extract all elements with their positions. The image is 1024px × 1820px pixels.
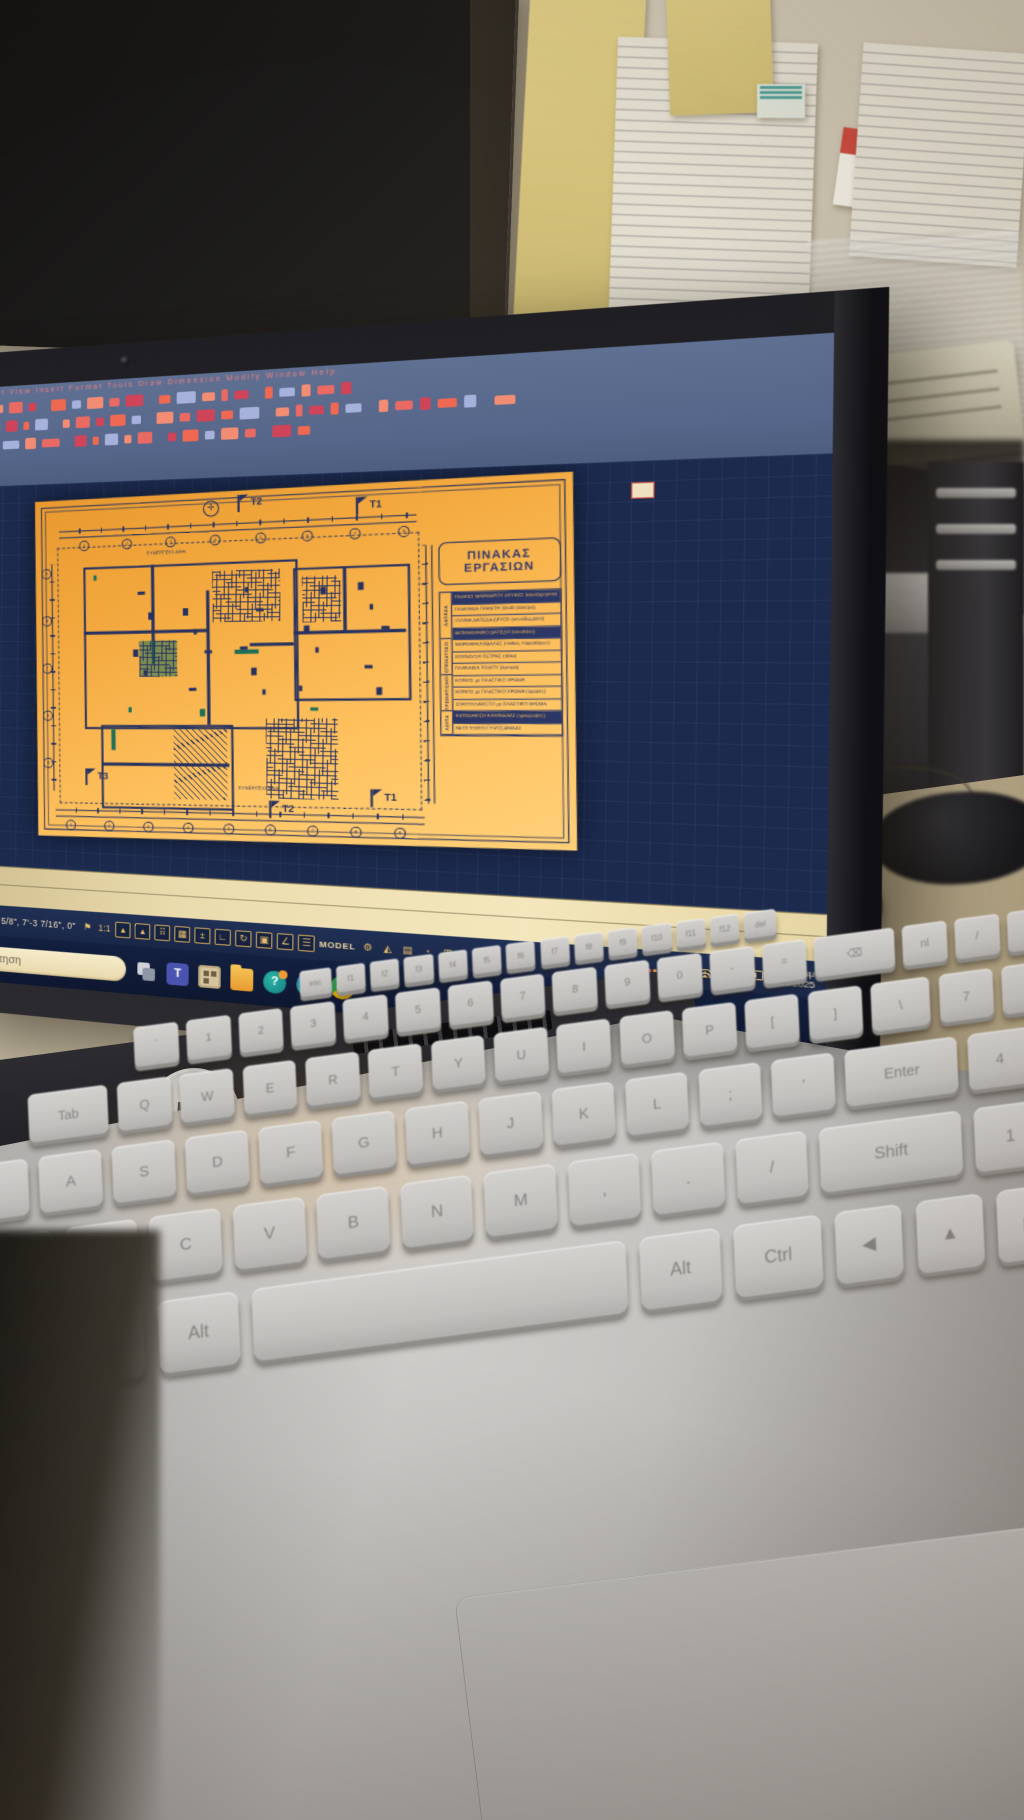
keyboard-key: ▶ — [996, 1182, 1024, 1263]
furniture-symbol — [245, 587, 248, 592]
toolbar-icon[interactable] — [105, 434, 118, 446]
toolbar-icon[interactable] — [110, 414, 125, 426]
keyboard-key: * — [1006, 907, 1024, 953]
keyboard-key: B — [316, 1186, 390, 1260]
furniture-symbol — [381, 626, 389, 630]
keyboard-key: ` — [133, 1022, 179, 1068]
keyboard-key: A — [39, 1149, 104, 1213]
furniture-symbol — [138, 591, 145, 594]
toolbar-icon[interactable] — [28, 403, 36, 412]
status-annotation-visibility[interactable]: ▴ — [115, 921, 131, 938]
furniture-symbol — [358, 582, 364, 590]
toolbar-icon[interactable] — [159, 394, 171, 403]
keyboard-key: 8 — [1001, 960, 1024, 1015]
keyboard-key: G — [332, 1111, 397, 1175]
toolbar-icon[interactable] — [42, 438, 60, 447]
cad-drawing-canvas[interactable]: ΣΥΝΕΡΓΕΙΟ ΑΘΗ ΣΥΝΕΡΓΕΙΟ ΑΘΗ ✛ T2 T1 T3 T… — [0, 453, 833, 914]
toolbar-icon[interactable] — [124, 435, 131, 444]
toolbar-icon[interactable] — [93, 436, 99, 445]
status-annotation-flag[interactable]: ⚑ — [81, 920, 94, 934]
device-tower — [928, 462, 1024, 792]
keyboard-key: nl — [902, 921, 948, 967]
status-model-space[interactable]: MODEL — [319, 937, 355, 954]
toolbar-icon[interactable] — [345, 403, 361, 413]
toolbar-icon[interactable] — [157, 412, 174, 425]
works-panel: ΠΙΝΑΚΑΣ ΕΡΓΑΣΙΩΝ ΔΑΠΕΔΑΕΠΕΝΔΥΣΕΙΣΧΡΩΜΑΤΙ… — [438, 537, 564, 834]
works-table-row: ΚΑΤΕΔΑΦΙΣΗ ΚΑΜΙΝΑΔΑΣ (ημιώροφος) — [453, 711, 562, 723]
keyboard-key: / — [954, 914, 1000, 960]
keyboard-key: , — [568, 1153, 642, 1227]
status-ortho-mode[interactable]: ∟ — [215, 928, 231, 945]
keyboard-key: I — [556, 1018, 611, 1073]
keyboard-key: 2 — [238, 1008, 284, 1054]
status-grid-display[interactable]: ▦ — [174, 925, 190, 942]
keyboard-key: V — [233, 1197, 307, 1271]
works-group-label: ΔΑΠΕΔΑ — [440, 593, 451, 640]
furniture-symbol — [310, 707, 318, 710]
keyboard-key: C — [149, 1208, 223, 1282]
furniture-symbol — [256, 608, 264, 611]
keyboard-key: O — [619, 1010, 674, 1065]
keyboard-key: H — [405, 1101, 470, 1165]
furniture-symbol — [133, 649, 138, 656]
furniture-symbol — [376, 687, 382, 695]
tile-hatch-zone — [212, 569, 280, 623]
toolbar-icon[interactable] — [9, 402, 23, 414]
section-flag-t1-top: T1 — [356, 498, 382, 517]
furniture-symbol — [370, 604, 374, 610]
toolbar-icon[interactable] — [272, 425, 291, 438]
keyboard-key: Alt — [639, 1228, 722, 1311]
keyboard-key: - — [709, 946, 755, 992]
keyboard-key: U — [494, 1027, 549, 1082]
keyboard-key: T — [368, 1043, 423, 1098]
toolbar-icon[interactable] — [183, 430, 199, 442]
keyboard-key: F — [258, 1120, 323, 1184]
search-placeholder: Αναζήτηση — [0, 951, 21, 967]
works-group-label: ΕΠΕΝΔΥΣΕΙΣ — [441, 640, 452, 676]
keyboard-key: 7 — [500, 974, 546, 1020]
desk-edge-shadow — [0, 1230, 160, 1820]
keyboard-key: esc — [299, 967, 332, 997]
stair-hatch — [174, 729, 228, 800]
toolbar-icon[interactable] — [63, 419, 70, 428]
grid-bullet: 3 — [143, 822, 153, 833]
section-flag-t2-bottom: T2 — [269, 803, 294, 821]
works-table-row: ΚΟΙΝΟΣ με ΠΛΑΣΤΙΚΟ ΧΡΩΜΑ — [453, 675, 561, 688]
keyboard-key: 3 — [290, 1001, 336, 1047]
keyboard-key: / — [735, 1131, 809, 1205]
grid-bullet: Γ — [43, 663, 53, 673]
keyboard-key: [ — [745, 994, 800, 1049]
status-snap-grid-dots[interactable]: ⠿ — [154, 924, 170, 941]
toolbar-icon[interactable] — [341, 382, 351, 395]
toolbar-icon[interactable] — [126, 395, 144, 408]
toolbar-icon[interactable] — [438, 398, 457, 408]
toolbar-icon[interactable] — [51, 399, 66, 411]
keyboard-key: 8 — [552, 967, 598, 1013]
furniture-symbol — [205, 650, 213, 653]
furniture-symbol — [194, 629, 197, 634]
keyboard-key: f2 — [370, 958, 400, 988]
toolbar-icon[interactable] — [464, 395, 476, 408]
section-flag-t1-bottom: T1 — [370, 792, 396, 810]
drawing-sheet: ΣΥΝΕΡΓΕΙΟ ΑΘΗ ΣΥΝΕΡΓΕΙΟ ΑΘΗ ✛ T2 T1 T3 T… — [35, 472, 577, 851]
furniture-symbol — [189, 688, 196, 691]
works-table-row: ΚΟΙΝΟΣ με ΠΛΑΣΤΙΚΟ ΧΡΩΜΑ (οροφές) — [453, 687, 562, 700]
keyboard-key: = — [761, 939, 807, 985]
furniture-symbol — [304, 625, 310, 633]
keyboard-key: f5 — [472, 945, 502, 975]
toolbar-icon[interactable] — [309, 405, 324, 415]
keyboard-key: S — [112, 1140, 177, 1204]
grid-bullet: 1 — [66, 820, 76, 831]
toolbar-icon[interactable] — [197, 409, 215, 422]
canvas-palette-chip[interactable] — [631, 482, 655, 499]
toolbar-icon[interactable] — [234, 390, 248, 399]
toolbar-icon[interactable] — [302, 384, 311, 397]
toolbar-icon[interactable] — [221, 389, 228, 401]
keyboard-key: 4 — [343, 995, 389, 1041]
furniture-symbol — [144, 670, 147, 675]
teal-memo-card — [757, 84, 805, 118]
keyboard-key: ⌫ — [814, 928, 896, 979]
furniture-symbol — [94, 575, 97, 580]
keyboard-key: W — [180, 1068, 235, 1123]
toolbar-icon[interactable] — [138, 432, 153, 444]
toolbar-icon[interactable] — [72, 400, 81, 409]
furniture-symbol — [240, 646, 248, 649]
toolbar-icon[interactable] — [96, 417, 104, 426]
status-annotation-scale[interactable]: 1:1 — [98, 921, 111, 935]
toolbar-icon[interactable] — [75, 435, 87, 447]
toolbar-icon[interactable] — [132, 415, 141, 424]
keyboard-key: M — [484, 1164, 558, 1238]
keyboard-key: 1 — [974, 1100, 1024, 1174]
keyboard-key: \ — [870, 976, 931, 1032]
toolbar-icon[interactable] — [25, 438, 36, 450]
keyboard-key: . — [651, 1142, 725, 1216]
keyboard-key: R — [305, 1052, 360, 1107]
keyboard-key: f10 — [642, 923, 672, 953]
keyboard-key: f4 — [438, 949, 468, 979]
section-flag-t2-top: T2 — [237, 496, 262, 515]
keyboard-key: ] — [808, 985, 863, 1040]
keyboard-key: 1 — [186, 1015, 232, 1061]
keyboard-key: Enter — [845, 1037, 959, 1108]
works-group-label: ΧΡΩΜΑΤΙΣΜΟΙ — [441, 675, 452, 711]
room-label: ΣΥΝΕΡΓΕΙΟ ΑΘΗ — [238, 785, 279, 791]
keyboard-key: f9 — [608, 927, 638, 957]
desk-photo-scene: hp File Edit View Insert Format Tools Dr… — [0, 0, 1024, 1820]
furniture-symbol — [364, 665, 372, 668]
furniture-symbol — [299, 686, 302, 691]
status-customization-gear[interactable]: ⚙ — [360, 939, 375, 954]
toolbar-icon[interactable] — [3, 440, 20, 449]
search-input[interactable]: Αναζήτηση — [0, 944, 126, 982]
status-lineweight[interactable]: ☰ — [298, 934, 315, 952]
toolbar-icon[interactable] — [245, 428, 256, 437]
status-annotation-monitor[interactable]: ◭ — [380, 941, 395, 957]
keyboard-key: L — [625, 1072, 690, 1136]
toolbar-icon[interactable] — [0, 405, 3, 414]
bath-hatch-zone — [302, 575, 341, 622]
toolbar-icon[interactable] — [494, 394, 515, 404]
keyboard-key: 9 — [604, 960, 650, 1006]
toolbar-icon[interactable] — [168, 432, 176, 441]
keyboard-key: ◀ — [834, 1204, 904, 1285]
keyboard-key: K — [551, 1082, 616, 1146]
furniture-symbol — [183, 608, 188, 616]
toolbar-icon[interactable] — [420, 397, 431, 410]
grid-bullet: 4 — [183, 823, 194, 834]
status-osnap-tracking[interactable]: ∠ — [277, 932, 294, 949]
keyboard-key: del — [744, 909, 777, 939]
keyboard-key: f11 — [676, 918, 706, 948]
toolbar-icon[interactable] — [240, 407, 260, 420]
keyboard-key: f8 — [574, 932, 604, 962]
toolbar-icon[interactable] — [265, 387, 273, 399]
keyboard-key: D — [185, 1130, 250, 1194]
grid-bullet: 9 — [394, 828, 406, 839]
grid-bullet: 5 — [223, 823, 234, 834]
keyboard-key: Y — [431, 1035, 486, 1090]
furniture-symbol — [251, 668, 257, 676]
works-rows: ΠΛΑΚΕΣ ΜΑΡΜΑΡΟΥ ΛΕΥΚΕΣ (κοινόχρηστοι)ΠΛΑ… — [452, 589, 562, 735]
toolbar-icon[interactable] — [331, 403, 339, 416]
toolbar-icon[interactable] — [221, 410, 233, 419]
furniture-symbol — [129, 707, 132, 712]
keyboard-key: N — [400, 1175, 474, 1249]
task-view-icon[interactable] — [135, 959, 157, 983]
grid-bullet: 6 — [265, 824, 276, 835]
keyboard-key: ; — [698, 1063, 763, 1127]
works-group-label: ΛΟΙΠΑ — [441, 711, 452, 735]
keyboard-key: 5 — [395, 988, 441, 1034]
keyboard-key: ' — [771, 1053, 836, 1117]
keyboard-key: Shift — [819, 1111, 964, 1194]
toolbar-icon[interactable] — [76, 416, 90, 428]
keyboard-key: f1 — [336, 963, 366, 993]
grid-bullet: 8 — [350, 827, 362, 838]
works-panel-title: ΠΙΝΑΚΑΣ ΕΡΓΑΣΙΩΝ — [438, 537, 561, 585]
furniture-symbol — [262, 689, 265, 694]
furniture-symbol — [200, 709, 205, 716]
keyboard-key: E — [242, 1060, 297, 1115]
background-monitor — [0, 0, 520, 363]
keyboard-key: f7 — [540, 936, 570, 966]
toolbar-icon[interactable] — [221, 427, 238, 440]
toolbar-icon[interactable] — [177, 391, 196, 404]
toolbar-icon[interactable] — [276, 407, 289, 416]
toolbar-icon[interactable] — [379, 400, 388, 413]
works-table: ΔΑΠΕΔΑΕΠΕΝΔΥΣΕΙΣΧΡΩΜΑΤΙΣΜΟΙΛΟΙΠΑ ΠΛΑΚΕΣ … — [439, 588, 563, 736]
furniture-symbol — [320, 587, 326, 595]
green-accent — [111, 729, 115, 750]
works-table-row: ΝΕΟΙ ΤΟΙΧΟΙ ΓΥΨΟΣΑΝΙΔΑΣ — [453, 723, 562, 735]
furniture-symbol — [148, 612, 153, 620]
keyboard-key: f12 — [710, 914, 740, 944]
toolbar-icon[interactable] — [109, 398, 119, 407]
toolbar-icon[interactable] — [298, 425, 310, 434]
toolbar-icon[interactable] — [279, 387, 295, 397]
furniture-symbol — [315, 647, 318, 653]
toolbar-icon[interactable] — [6, 420, 18, 432]
toolbar-icon[interactable] — [23, 421, 29, 429]
grid-bullet: 7 — [307, 825, 318, 836]
north-symbol: ✛ — [203, 500, 219, 517]
floor-plan: ΣΥΝΕΡΓΕΙΟ ΑΘΗ ΣΥΝΕΡΓΕΙΟ ΑΘΗ ✛ T2 T1 T3 T… — [49, 505, 429, 822]
keyboard-key: Caps — [0, 1159, 30, 1229]
toolbar-icon[interactable] — [296, 405, 303, 417]
keyboard-key: 0 — [657, 953, 703, 999]
green-accent — [235, 649, 259, 654]
keyboard-key: J — [478, 1092, 543, 1156]
keyboard-key: ▲ — [915, 1193, 985, 1274]
toolbar-icon[interactable] — [180, 412, 191, 421]
toolbar-icon[interactable] — [202, 392, 215, 401]
coordinates-readout: -11 5/8", 7'-3 7/16", 0" — [0, 915, 76, 932]
grid-bullet: Ε — [43, 758, 53, 768]
section-flag-t3: T3 — [85, 770, 108, 787]
toolbar-icon[interactable] — [87, 397, 103, 409]
grid-bullet: Δ — [43, 711, 53, 721]
status-annotation-autoscale[interactable]: ▴ — [135, 923, 151, 940]
status-snap-mode[interactable]: ± — [194, 927, 210, 944]
status-object-snap[interactable]: ▣ — [256, 931, 273, 948]
toolbar-icon[interactable] — [395, 400, 413, 410]
keyboard-key: Ctrl — [733, 1214, 823, 1298]
toolbar-icon[interactable] — [205, 430, 215, 439]
toolbar-icon[interactable] — [317, 385, 334, 395]
toolbar-icon[interactable] — [35, 419, 48, 431]
status-polar-tracking[interactable]: ↻ — [235, 930, 251, 947]
keyboard-key: Alt — [157, 1291, 240, 1374]
grid-bullet: 2 — [104, 821, 114, 832]
works-table-row: ΣΠΑΤΟΥΛΑΡΙΣΤΟ με ΠΛΑΣΤΙΚΟ ΧΡΩΜΑ — [453, 699, 562, 712]
keyboard-key: Q — [117, 1076, 172, 1131]
teams-icon[interactable]: T — [166, 962, 188, 986]
keyboard-key: P — [682, 1002, 737, 1057]
webcam — [120, 355, 129, 365]
keyboard-key: Tab — [27, 1085, 109, 1144]
keyboard-key: 4 — [968, 1027, 1024, 1091]
keyboard-key: 6 — [447, 981, 493, 1027]
keyboard-key: 7 — [938, 968, 993, 1023]
keyboard-key: f6 — [506, 940, 536, 970]
keyboard-key: f3 — [404, 954, 434, 984]
